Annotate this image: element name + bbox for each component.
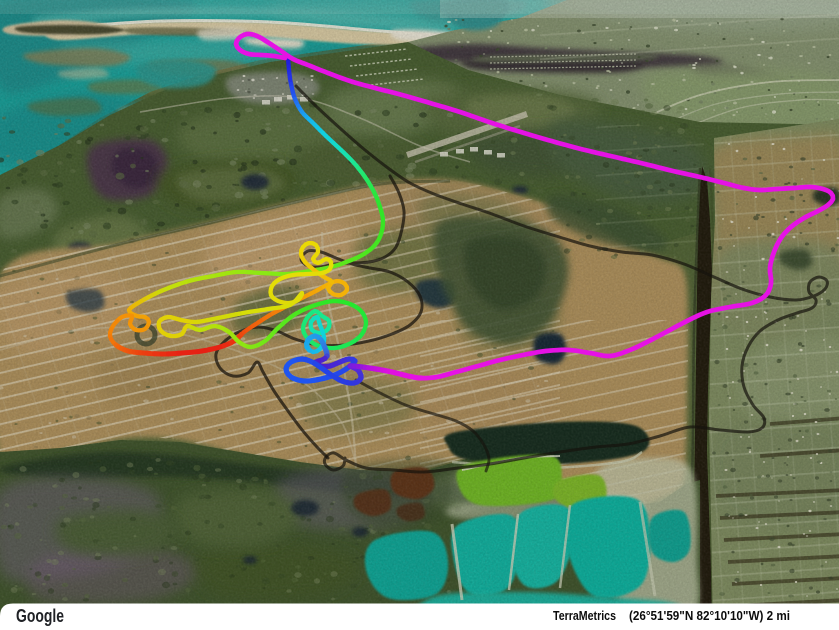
svg-text:TerraMetrics: TerraMetrics: [553, 608, 616, 623]
svg-text:(26°51'59"N 82°10'10"W) 2 mi: (26°51'59"N 82°10'10"W) 2 mi: [629, 608, 790, 623]
svg-text:Google: Google: [16, 606, 64, 626]
